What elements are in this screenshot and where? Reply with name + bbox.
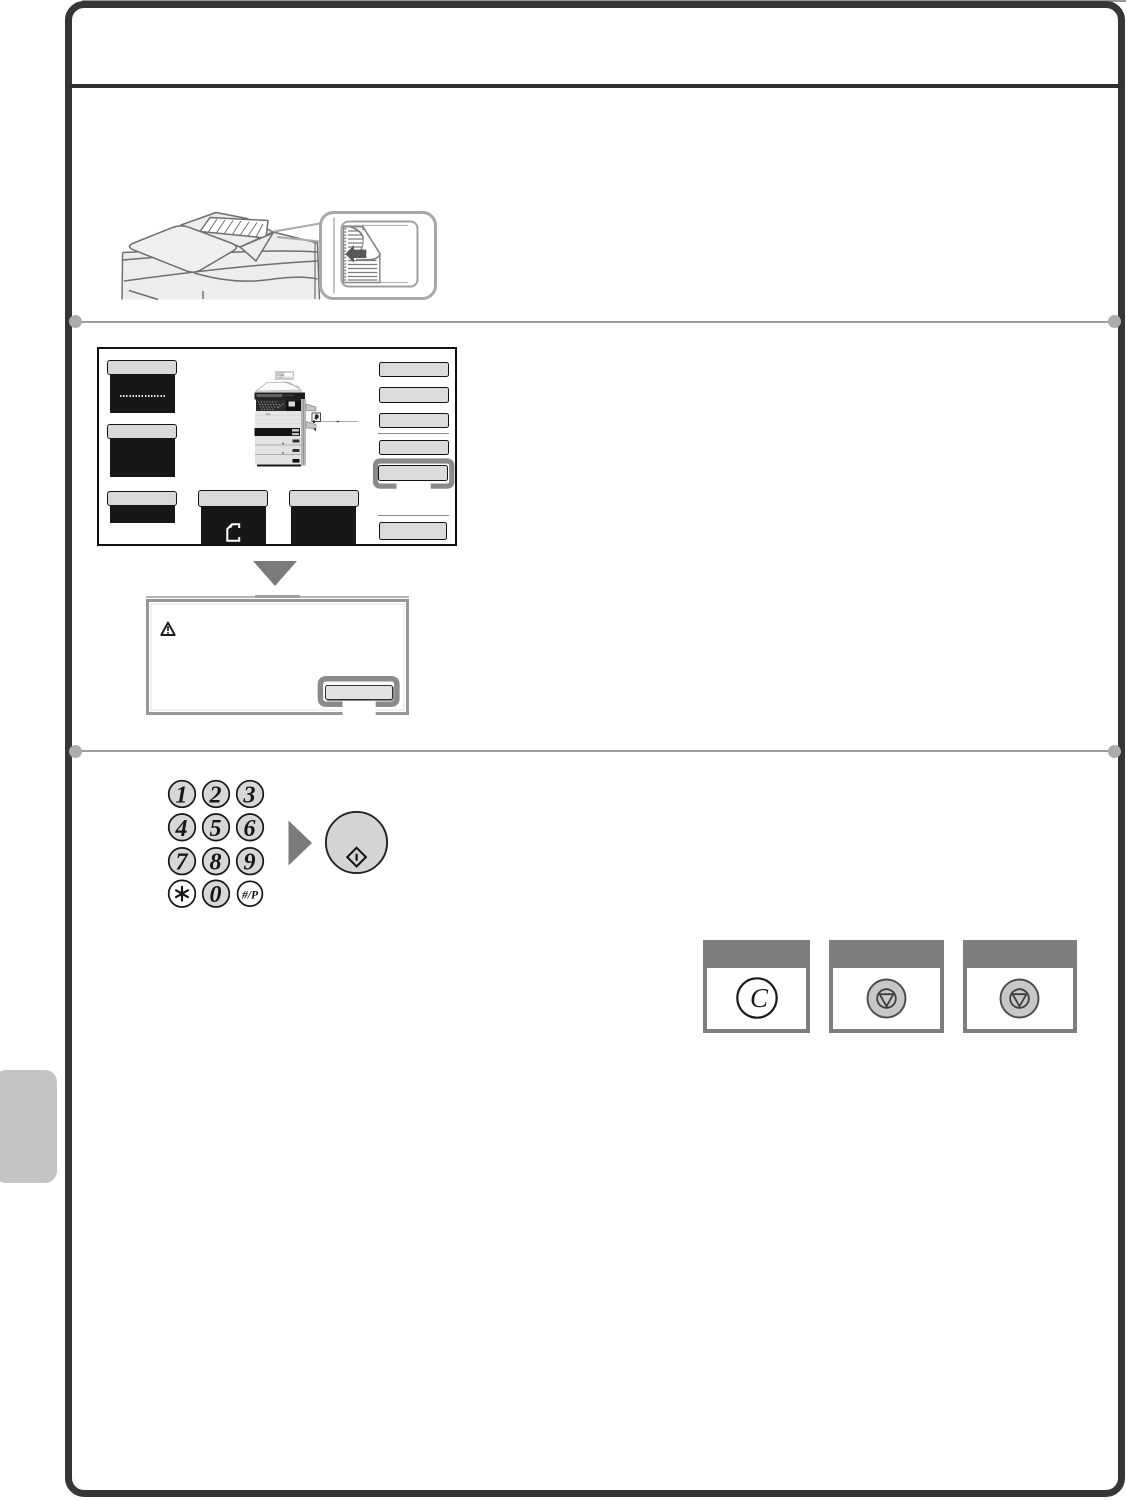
svg-text:9: 9 <box>244 850 256 876</box>
svg-text:8: 8 <box>210 850 222 876</box>
svg-text:7: 7 <box>176 850 189 876</box>
svg-text:5: 5 <box>210 816 222 842</box>
svg-text:#/P: #/P <box>241 889 259 901</box>
svg-text:6: 6 <box>244 816 256 842</box>
svg-text:0: 0 <box>210 882 222 908</box>
svg-text:4: 4 <box>175 816 188 842</box>
svg-text:3: 3 <box>243 783 256 809</box>
svg-text:C: C <box>750 983 769 1013</box>
svg-text:1: 1 <box>176 783 188 809</box>
svg-text:2: 2 <box>209 783 222 809</box>
